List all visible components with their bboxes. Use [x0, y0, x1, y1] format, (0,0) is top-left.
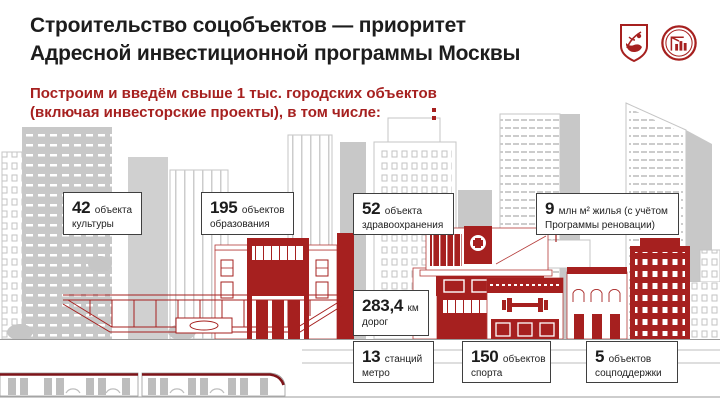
stat-label: млн м² жилья (с учётом — [559, 206, 668, 217]
stat-value: 13 — [362, 347, 380, 366]
sports-building — [487, 278, 563, 339]
stat-label: объектов — [242, 205, 285, 216]
stat-card-education: 195 объектов образования — [201, 192, 294, 235]
stat-card-roads: 283,4 км дорог — [353, 290, 429, 336]
stat-card-housing: 9 млн м² жилья (с учётом Программы ренов… — [536, 193, 679, 235]
stat-card-metro: 13 станций метро — [353, 341, 434, 383]
stat-card-sport: 150 объектов спорта — [462, 341, 551, 383]
stat-value: 52 — [362, 199, 380, 218]
stat-label-line2: соцподдержки — [595, 368, 672, 380]
stat-label: станций — [385, 354, 422, 365]
logo-group — [618, 22, 710, 64]
page-title: Строительство соцобъектов — приоритет Ад… — [30, 12, 610, 68]
stat-value: 283,4 — [362, 296, 403, 315]
stat-value: 9 — [545, 199, 554, 218]
infographic-root: Строительство соцобъектов — приоритет Ад… — [0, 0, 720, 405]
residential-tower — [630, 238, 690, 339]
stat-card-healthcare: 52 объекта здравоохранения — [353, 193, 454, 235]
stat-label: объектов — [609, 354, 652, 365]
stat-label-line2: образования — [210, 219, 288, 231]
classical-building — [567, 267, 627, 339]
theater-building — [215, 233, 354, 339]
stat-label: объекта — [95, 205, 132, 216]
stat-card-social: 5 объектов соцподдержки — [586, 341, 678, 383]
page-title-line1: Строительство соцобъектов — приоритет — [30, 12, 610, 40]
stat-value: 42 — [72, 198, 90, 217]
stat-value: 150 — [471, 347, 498, 366]
moscow-coat-of-arms-icon — [618, 23, 650, 63]
stat-label: км — [408, 303, 419, 314]
stat-label: объектов — [503, 354, 546, 365]
metro-train — [0, 373, 285, 396]
stat-label-line2: здравоохранения — [362, 220, 448, 232]
stat-value: 5 — [595, 347, 604, 366]
stat-label: объекта — [385, 206, 422, 217]
construction-complex-emblem-icon — [660, 23, 698, 63]
stat-label-line2: дорог — [362, 317, 423, 329]
stat-label-line2: спорта — [471, 368, 545, 380]
stat-label-line2: метро — [362, 368, 428, 380]
stat-card-culture: 42 объекта культуры — [63, 192, 142, 235]
stat-label-line2: Программы реновации) — [545, 220, 673, 232]
stat-value: 195 — [210, 198, 237, 217]
stat-label-line2: культуры — [72, 219, 136, 231]
page-title-line2: Адресной инвестиционной программы Москвы — [30, 40, 610, 68]
